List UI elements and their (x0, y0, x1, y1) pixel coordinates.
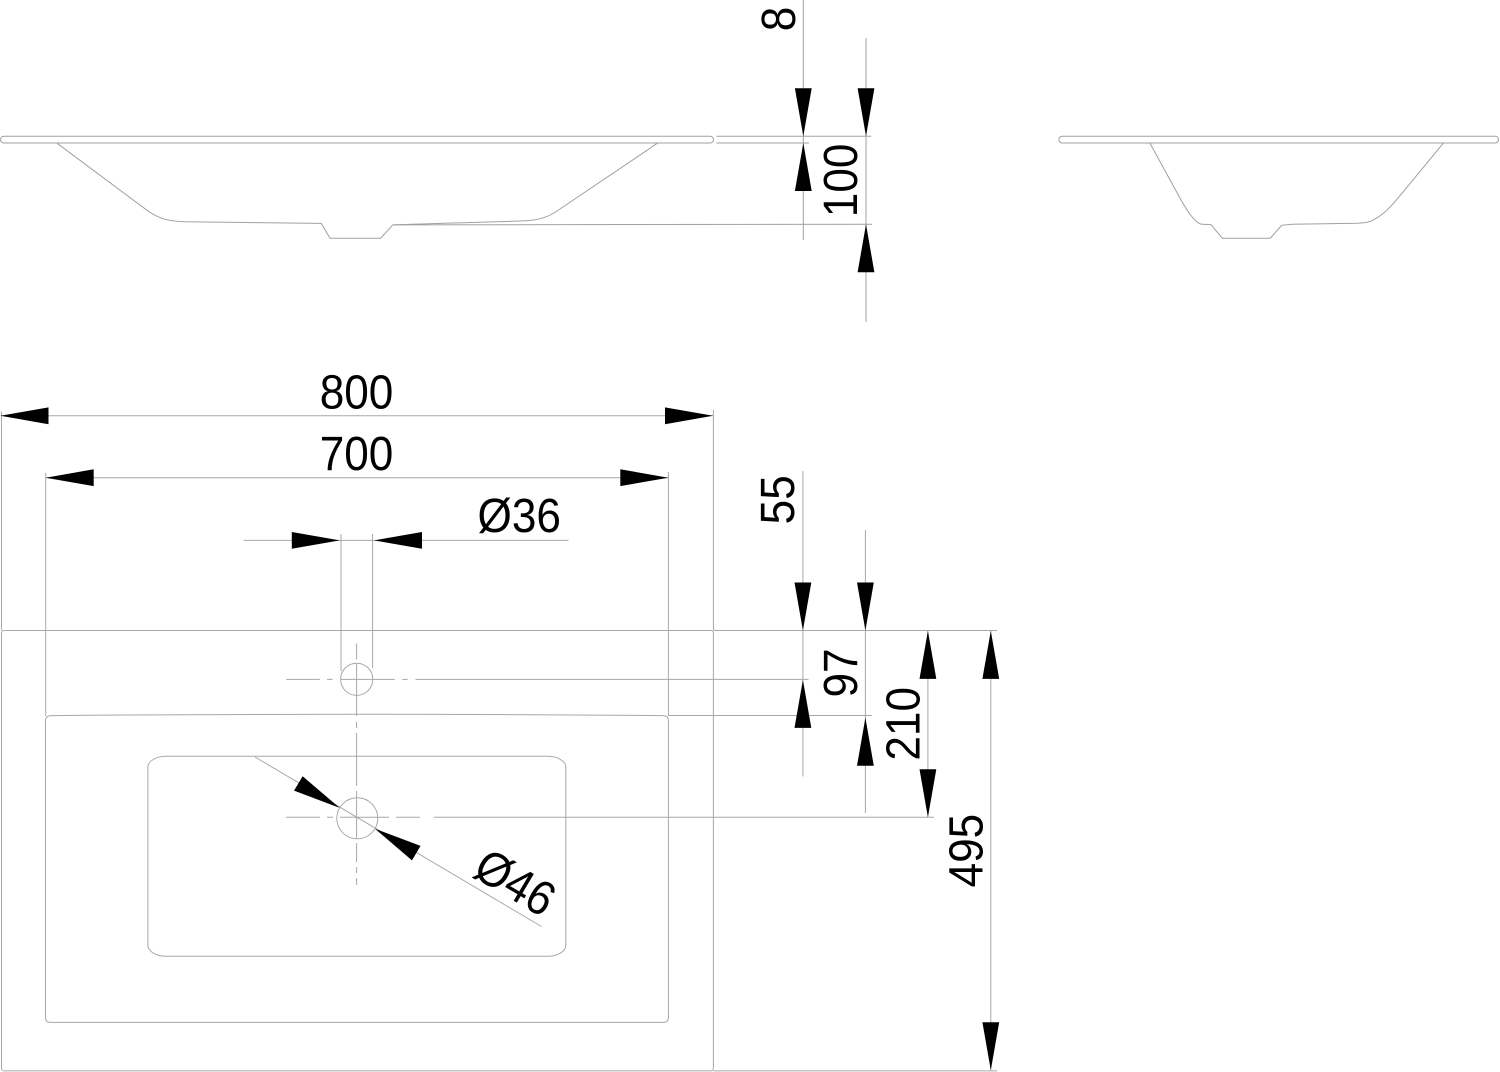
svg-text:495: 495 (938, 814, 992, 888)
svg-text:8: 8 (751, 7, 805, 32)
svg-text:97: 97 (813, 648, 867, 697)
svg-text:Ø36: Ø36 (477, 488, 560, 542)
svg-text:210: 210 (875, 687, 929, 761)
svg-text:800: 800 (320, 365, 394, 419)
svg-text:700: 700 (320, 426, 394, 480)
svg-text:100: 100 (813, 144, 867, 218)
svg-text:Ø46: Ø46 (466, 838, 565, 927)
svg-text:55: 55 (750, 475, 804, 524)
